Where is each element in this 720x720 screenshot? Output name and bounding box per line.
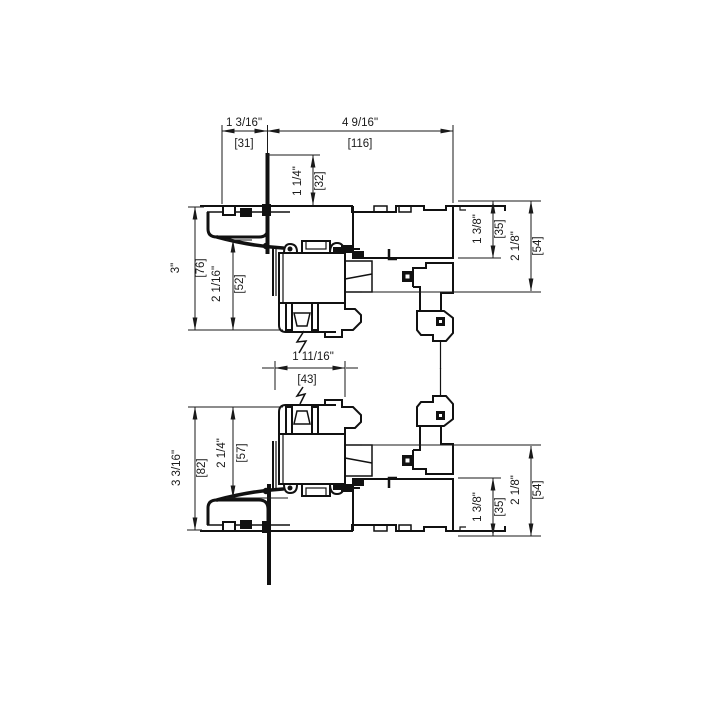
dim-upper-overall-inches: 3" [170,263,182,273]
dim-frame-width-inches: 4 9/16" [342,117,378,129]
dim-interlock-gap: 1 11/16" [43] [262,331,358,404]
dim-top-offset-mm: [31] [234,138,253,150]
dim-lower-sash-mm: [57] [236,443,248,462]
dim-head-inset-inches: 1 1/4" [292,166,304,196]
dim-upper-glass-pocket: 1 3/8" [35] [458,201,541,258]
dim-head-inset-mm: [32] [314,171,326,190]
dim-upper-glass-pocket-mm: [35] [494,219,506,238]
dim-lower-track-mm: [54] [532,480,544,499]
dim-lower-track-inches: 2 1/8" [510,475,522,505]
dim-frame-width-mm: [116] [348,138,373,150]
drawing-canvas: 1 3/16" [31] 4 9/16" [116] 1 1/4" [32] 3… [0,0,720,720]
dim-upper-track: 2 1/8" [54] [510,201,544,291]
dim-lower-sash-inches: 2 1/4" [216,438,228,468]
dim-lower-glass-pocket-inches: 1 3/8" [472,492,484,522]
dim-lower-glass-pocket: 1 3/8" [35] [458,478,541,536]
dim-top-offset-inches: 1 3/16" [226,117,262,129]
dim-head-inset: 1 1/4" [32] [267,155,326,205]
dim-upper-track-mm: [54] [532,236,544,255]
dim-upper-sash: 2 1/16" [52] [211,240,252,330]
dim-lower-sash: 2 1/4" [57] [216,407,288,498]
upper-assembly [200,206,541,369]
section-drawing-svg: 1 3/16" [31] 4 9/16" [116] 1 1/4" [32] 3… [0,0,720,720]
dim-upper-glass-pocket-inches: 1 3/8" [472,214,484,244]
dim-top-offset: 1 3/16" [31] [222,117,267,204]
dim-upper-sash-inches: 2 1/16" [211,266,223,302]
dim-interlock-gap-mm: [43] [297,374,316,386]
dim-upper-track-inches: 2 1/8" [510,231,522,261]
dim-lower-glass-pocket-mm: [35] [494,497,506,516]
dim-lower-overall-mm: [82] [196,458,208,477]
dim-upper-overall-mm: [76] [195,258,207,277]
dim-lower-overall-inches: 3 3/16" [171,450,183,486]
dim-interlock-gap-inches: 1 11/16" [292,351,334,363]
dim-upper-sash-mm: [52] [234,274,246,293]
lower-assembly [200,368,541,531]
dim-lower-track: 2 1/8" [54] [510,446,544,536]
